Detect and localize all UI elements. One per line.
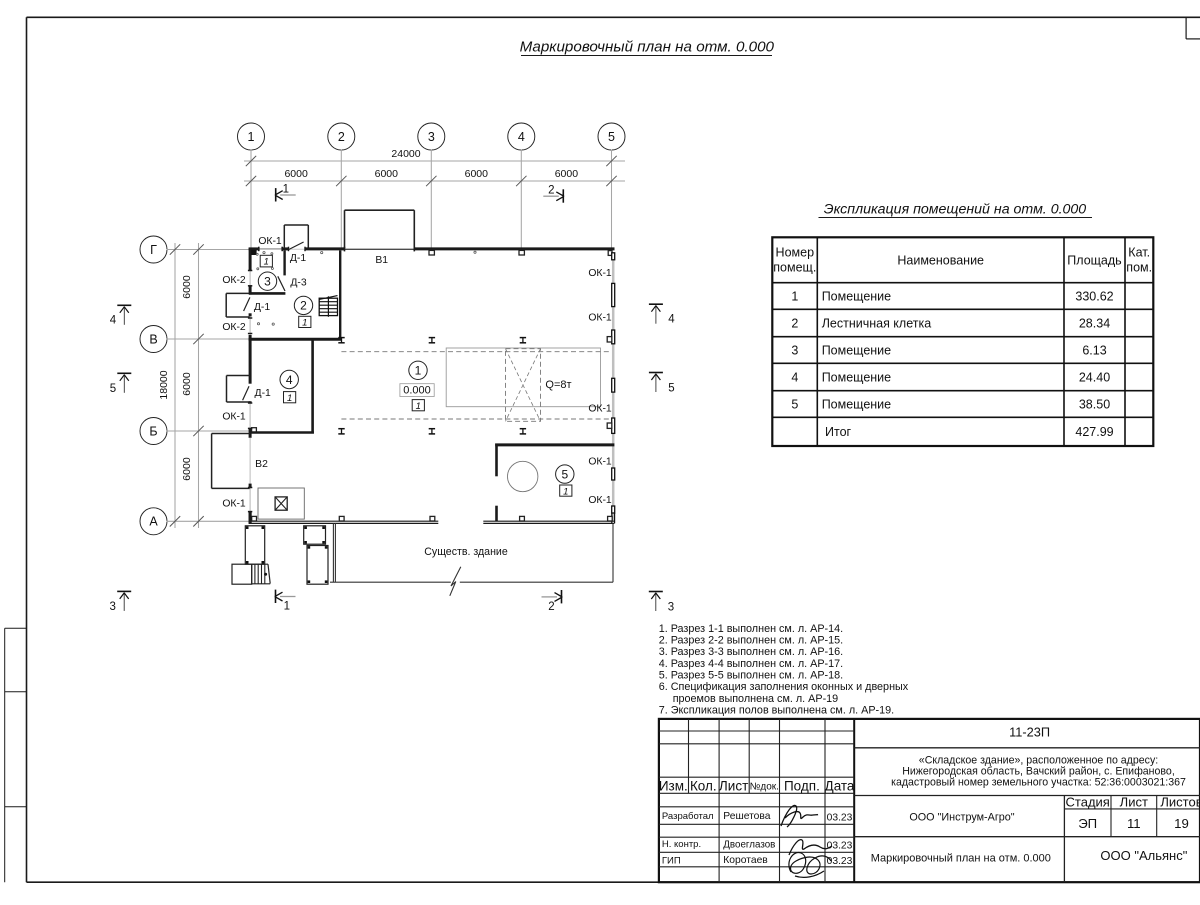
svg-text:330.62: 330.62 — [1075, 289, 1113, 303]
svg-text:Итог: Итог — [825, 425, 852, 439]
svg-text:Д-1: Д-1 — [290, 253, 306, 264]
svg-text:3. Разрез 3-3 выполнен см. л.: 3. Разрез 3-3 выполнен см. л. АР-16. — [659, 646, 843, 658]
svg-text:28.34: 28.34 — [1079, 316, 1110, 330]
svg-text:Д-1: Д-1 — [254, 302, 270, 313]
svg-text:4: 4 — [110, 315, 117, 327]
svg-text:ОК-1: ОК-1 — [222, 412, 246, 423]
svg-text:1. Разрез 1-1 выполнен см. л.: 1. Разрез 1-1 выполнен см. л. АР-14. — [659, 623, 843, 635]
svg-text:ОК-1: ОК-1 — [588, 495, 612, 506]
svg-text:24.40: 24.40 — [1079, 370, 1110, 384]
svg-text:1: 1 — [264, 257, 269, 268]
svg-text:ОК-2: ОК-2 — [222, 322, 246, 333]
svg-text:6000: 6000 — [181, 275, 193, 299]
svg-text:В: В — [149, 332, 157, 346]
svg-text:03.23: 03.23 — [827, 812, 853, 823]
svg-text:Маркировочный план на отм. 0.0: Маркировочный план на отм. 0.000 — [871, 853, 1051, 865]
svg-text:427.99: 427.99 — [1075, 425, 1113, 439]
svg-text:3: 3 — [791, 343, 798, 357]
svg-text:5: 5 — [561, 467, 568, 481]
svg-text:кадастровый номер земельного у: кадастровый номер земельного участка: 52… — [891, 776, 1186, 788]
svg-text:В2: В2 — [255, 459, 268, 470]
svg-text:2: 2 — [791, 316, 798, 330]
svg-text:1: 1 — [248, 130, 255, 144]
svg-text:5: 5 — [668, 382, 674, 394]
svg-text:0.000: 0.000 — [403, 385, 431, 397]
svg-text:6000: 6000 — [555, 168, 579, 180]
svg-text:ООО "Альянс": ООО "Альянс" — [1100, 848, 1187, 863]
svg-text:3: 3 — [428, 130, 435, 144]
svg-text:Дата: Дата — [825, 778, 855, 793]
svg-text:Стадия: Стадия — [1066, 795, 1110, 810]
svg-text:4: 4 — [286, 373, 293, 387]
svg-text:24000: 24000 — [391, 148, 420, 160]
svg-text:Q=8т: Q=8т — [545, 379, 571, 391]
svg-text:Д-1: Д-1 — [255, 388, 271, 399]
svg-text:Д-3: Д-3 — [290, 278, 306, 289]
svg-text:1: 1 — [563, 486, 568, 497]
svg-text:Наименование: Наименование — [897, 254, 984, 268]
svg-text:6000: 6000 — [284, 168, 308, 180]
svg-text:6000: 6000 — [181, 457, 193, 481]
svg-text:проемов выполнена см. л. АР-19: проемов выполнена см. л. АР-19 — [673, 693, 839, 705]
svg-text:Разработал: Разработал — [662, 811, 714, 822]
svg-text:19: 19 — [1174, 816, 1189, 831]
svg-text:ОК-1: ОК-1 — [588, 313, 612, 324]
svg-text:Двоеглазов: Двоеглазов — [723, 840, 775, 851]
svg-text:2: 2 — [338, 130, 345, 144]
svg-text:Лист: Лист — [719, 778, 748, 793]
svg-text:ОК-1: ОК-1 — [258, 236, 282, 247]
svg-text:38.50: 38.50 — [1079, 397, 1110, 411]
svg-text:1: 1 — [302, 318, 307, 329]
svg-text:03.23: 03.23 — [827, 856, 853, 867]
svg-text:В1: В1 — [375, 255, 388, 266]
svg-text:ОК-1: ОК-1 — [588, 268, 612, 279]
svg-text:помещ.: помещ. — [773, 261, 816, 275]
svg-text:Помещение: Помещение — [822, 397, 891, 411]
svg-text:11-23П: 11-23П — [1009, 725, 1050, 740]
svg-text:Листов: Листов — [1160, 795, 1200, 810]
svg-text:А: А — [149, 515, 158, 529]
svg-text:2: 2 — [300, 299, 307, 313]
svg-text:ГИП: ГИП — [662, 855, 681, 866]
svg-text:1: 1 — [791, 289, 798, 303]
svg-text:6000: 6000 — [375, 168, 399, 180]
svg-text:3: 3 — [109, 601, 115, 613]
svg-text:4: 4 — [668, 313, 675, 325]
svg-text:4: 4 — [518, 130, 525, 144]
svg-text:Коротаев: Коротаев — [723, 855, 768, 866]
svg-text:Помещение: Помещение — [822, 289, 891, 303]
svg-text:Лестничная клетка: Лестничная клетка — [822, 316, 932, 330]
svg-text:Подп.: Подп. — [784, 778, 820, 793]
svg-text:Г: Г — [150, 243, 157, 257]
svg-text:ОК-1: ОК-1 — [588, 404, 612, 415]
svg-text:№док.: №док. — [750, 781, 779, 792]
svg-text:1: 1 — [415, 364, 422, 378]
svg-text:2. Разрез 2-2 выполнен см. л.: 2. Разрез 2-2 выполнен см. л. АР-15. — [659, 634, 843, 646]
svg-text:Существ. здание: Существ. здание — [424, 546, 508, 558]
svg-text:1: 1 — [287, 393, 292, 404]
svg-text:ЭП: ЭП — [1078, 816, 1097, 831]
svg-text:Маркировочный план на отм. 0.0: Маркировочный план на отм. 0.000 — [520, 39, 775, 56]
svg-text:Решетова: Решетова — [723, 811, 770, 822]
svg-text:Н. контр.: Н. контр. — [662, 839, 701, 850]
svg-text:18000: 18000 — [158, 370, 170, 399]
svg-text:5. Разрез 5-5 выполнен см. л.: 5. Разрез 5-5 выполнен см. л. АР-18. — [659, 669, 843, 681]
svg-text:1: 1 — [416, 401, 421, 412]
svg-text:6000: 6000 — [465, 168, 489, 180]
svg-text:ОК-1: ОК-1 — [588, 457, 612, 468]
svg-text:4. Разрез 4-4 выполнен см. л.: 4. Разрез 4-4 выполнен см. л. АР-17. — [659, 658, 843, 670]
svg-text:пом.: пом. — [1126, 261, 1152, 275]
svg-text:Изм.: Изм. — [659, 778, 688, 793]
svg-text:1: 1 — [283, 183, 289, 195]
svg-text:Помещение: Помещение — [822, 343, 891, 357]
svg-text:ОК-2: ОК-2 — [222, 275, 246, 286]
svg-text:4: 4 — [791, 370, 798, 384]
svg-text:Кол.: Кол. — [690, 778, 717, 793]
svg-text:5: 5 — [608, 130, 615, 144]
svg-text:Помещение: Помещение — [822, 370, 891, 384]
svg-text:Б: Б — [149, 424, 157, 438]
svg-text:1: 1 — [284, 601, 290, 613]
svg-text:ООО "Инструм-Агро": ООО "Инструм-Агро" — [909, 811, 1014, 823]
svg-text:Экспликация помещений на отм.: Экспликация помещений на отм. 0.000 — [824, 202, 1087, 218]
svg-text:Номер: Номер — [776, 246, 815, 260]
svg-text:7. Экспликация полов выполнена: 7. Экспликация полов выполнена см. л. АР… — [659, 704, 894, 716]
svg-text:3: 3 — [264, 275, 271, 289]
svg-text:6. Спецификация заполнения око: 6. Спецификация заполнения оконных и две… — [659, 681, 909, 693]
svg-text:ОК-1: ОК-1 — [222, 498, 246, 509]
svg-text:5: 5 — [110, 383, 116, 395]
svg-text:11: 11 — [1127, 816, 1141, 831]
svg-text:6.13: 6.13 — [1082, 343, 1106, 357]
svg-text:2: 2 — [548, 601, 554, 613]
svg-text:Площадь: Площадь — [1067, 254, 1121, 268]
svg-text:2: 2 — [548, 185, 554, 197]
svg-text:6000: 6000 — [181, 372, 193, 396]
svg-text:Кат.: Кат. — [1128, 246, 1150, 260]
svg-text:Лист: Лист — [1120, 795, 1148, 810]
svg-text:5: 5 — [791, 397, 798, 411]
svg-text:3: 3 — [668, 601, 674, 613]
